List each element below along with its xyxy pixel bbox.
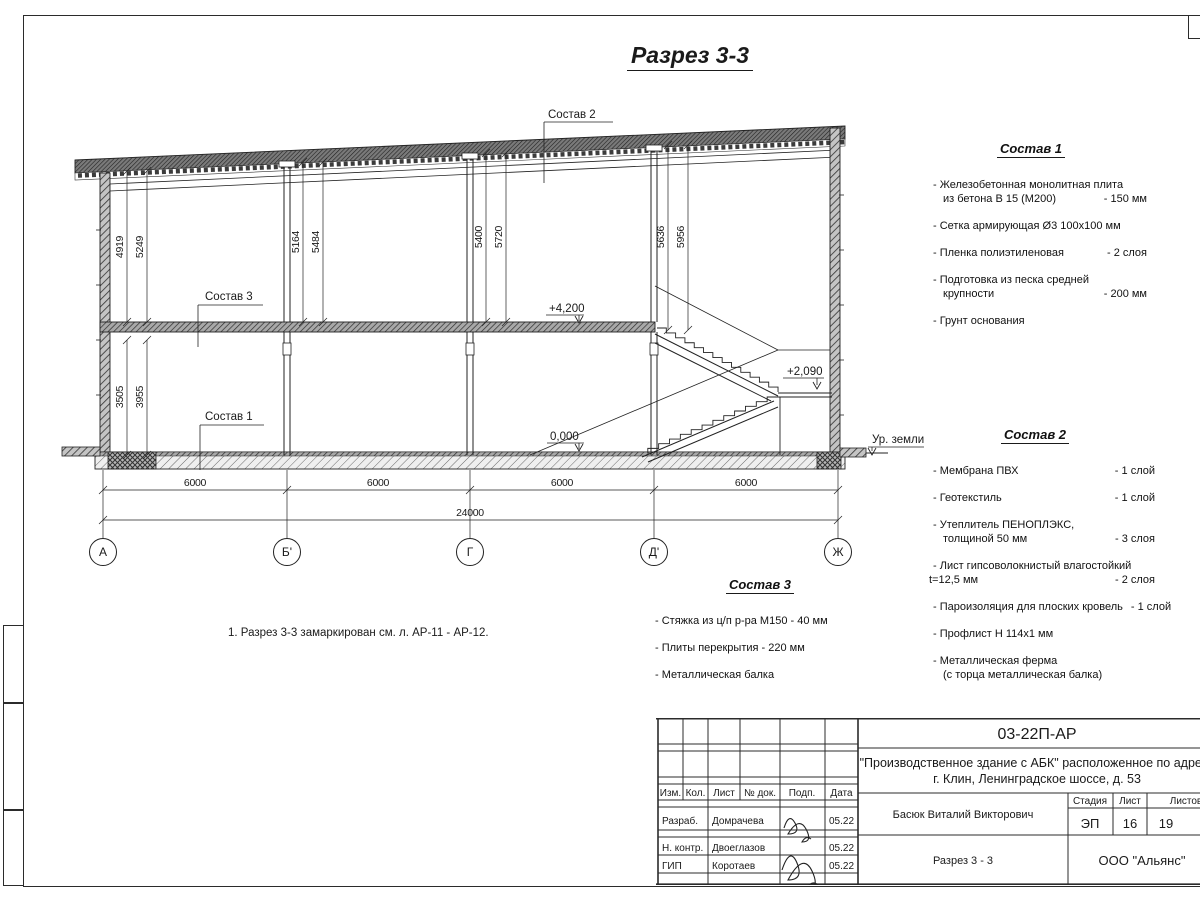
lower-flight-steps (648, 397, 778, 453)
signature-gip (782, 856, 818, 885)
role-razrab: Разраб. (662, 815, 698, 827)
left-wall (100, 173, 110, 455)
spec-block-sostav1: Состав 1 - Железобетонная монолитная пли… (915, 142, 1147, 328)
spec1-title: Состав 1 (915, 142, 1147, 156)
stage-label: Стадия (1073, 796, 1107, 807)
dim-d-upper-inner: 5636 (655, 225, 667, 248)
floor-slab-second (100, 322, 655, 332)
dim-bay2: 6000 (367, 477, 390, 489)
stage-value: ЭП (1081, 816, 1100, 831)
horizontal-dimensions (99, 470, 842, 538)
dim-g-upper-inner: 5400 (473, 225, 485, 248)
spec1-item: - Грунт основания (915, 314, 1147, 328)
sheets-total: 19 (1159, 816, 1173, 831)
spec1-item: - Сетка армирующая Ø3 100х100 мм (915, 219, 1147, 233)
columns (279, 145, 662, 455)
spec3-item: - Стяжка из ц/п р-ра М150 - 40 мм (655, 614, 865, 628)
col-izm: Изм. (660, 788, 681, 799)
elevation-floor1: 0,000 (550, 431, 579, 443)
title-block-grid: Изм. Кол. Лист № док. Подп. Дата Разраб.… (656, 718, 1200, 885)
spec3-title: Состав 3 (655, 578, 865, 592)
margin-stamp-cell (3, 625, 24, 704)
axis-a: А (99, 545, 107, 559)
col-data: Дата (830, 788, 853, 799)
drawing-sheet: { "page": { "title": "Разрез 3-3", "note… (0, 0, 1200, 900)
axis-g: Г (467, 545, 474, 559)
sheet-number: 16 (1123, 816, 1137, 831)
spec2-item: (с торца металлическая балка) (915, 668, 1155, 682)
sheet-name: Разрез 3 - 3 (933, 855, 993, 867)
dim-a-lower-outer: 3955 (134, 385, 146, 408)
doc-number: 03-22П-АР (997, 726, 1076, 743)
railing-upper (655, 286, 778, 350)
dim-a-upper-inner: 4919 (114, 235, 126, 258)
roof (75, 126, 845, 191)
upper-flight-steps (657, 328, 778, 392)
project-name-line1: "Производственное здание с АБК" располож… (860, 756, 1200, 770)
col-kol: Кол. (686, 788, 706, 799)
axis-b: Б' (282, 545, 292, 559)
spec1-item: из бетона В 15 (М200)- 150 мм (915, 192, 1147, 206)
margin-stamp-cell (3, 702, 24, 811)
approver-name: Басюк Виталий Викторович (893, 809, 1034, 821)
spec-block-sostav2: Состав 2 - Мембрана ПВХ- 1 слой - Геотек… (915, 428, 1155, 682)
spec-block-sostav3: Состав 3 - Стяжка из ц/п р-ра М150 - 40 … (655, 578, 865, 682)
title-block: Изм. Кол. Лист № док. Подп. Дата Разраб.… (656, 718, 1200, 885)
elevation-floor2: +4,200 (549, 303, 585, 315)
elevation-landing: +2,090 (787, 366, 823, 378)
spec3-item: - Металлическая балка (655, 668, 865, 682)
margin-stamp-cell (3, 809, 24, 886)
name-razrab: Домрачева (712, 816, 764, 827)
spec2-item: t=12,5 мм- 2 слоя (915, 573, 1155, 587)
spec2-item: - Геотекстиль- 1 слой (915, 491, 1155, 505)
name-nkontr: Двоеглазов (712, 843, 765, 854)
right-ledge (840, 448, 866, 457)
sheets-label: Листов (1170, 796, 1200, 807)
leader-sostav3: Состав 3 (205, 291, 253, 303)
dim-bay4: 6000 (735, 477, 758, 489)
signatures (782, 819, 818, 885)
left-footing (108, 452, 156, 469)
project-name-line2: г. Клин, Ленинградское шоссе, д. 53 (933, 772, 1141, 786)
date-razrab: 05.22 (829, 816, 854, 827)
right-footing (817, 452, 841, 469)
spec1-item: - Железобетонная монолитная плита (915, 178, 1147, 192)
spec3-item: - Плиты перекрытия - 220 мм (655, 641, 865, 655)
spec2-item: - Металлическая ферма (915, 654, 1155, 668)
col-podp: Подп. (789, 788, 816, 799)
date-gip: 05.22 (829, 861, 854, 872)
axis-markers: А Б' Г Д' Ж (90, 539, 852, 566)
ground-slab (62, 447, 888, 469)
drawing-note: 1. Разрез 3-3 замаркирован см. л. АР-11 … (228, 627, 489, 639)
axis-zh: Ж (832, 545, 843, 559)
right-wall (830, 128, 840, 455)
page-title: Разрез 3-3 (600, 42, 780, 69)
left-ledge (62, 447, 100, 456)
dim-a-lower-inner: 3505 (114, 385, 126, 408)
spec2-item: толщиной 50 мм- 3 слоя (915, 532, 1155, 546)
dim-b-upper-outer: 5484 (310, 230, 322, 253)
spec2-title: Состав 2 (915, 428, 1155, 442)
spec2-item: - Пароизоляция для плоских кровель- 1 сл… (915, 600, 1155, 614)
sheet-label: Лист (1119, 796, 1141, 807)
dim-bay1: 6000 (184, 477, 207, 489)
spec2-item: - Лист гипсоволокнистый влагостойкий (915, 559, 1155, 573)
section-drawing: 4919 5249 5164 5484 5400 5720 5636 5956 … (60, 85, 940, 585)
dim-d-upper-outer: 5956 (675, 225, 687, 248)
dim-total: 24000 (456, 507, 484, 519)
spec1-item: - Подготовка из песка средней (915, 273, 1147, 287)
col-doc: № док. (744, 788, 776, 799)
sheet-corner-box (1188, 15, 1200, 39)
spec2-item: - Утеплитель ПЕНОПЛЭКС, (915, 518, 1155, 532)
spec1-item: - Пленка полиэтиленовая- 2 слоя (915, 246, 1147, 260)
spec2-item: - Профлист Н 114х1 мм (915, 627, 1155, 641)
dim-a-upper-outer: 5249 (134, 235, 146, 258)
dim-b-upper-inner: 5164 (290, 230, 302, 253)
dim-bay3: 6000 (551, 477, 574, 489)
spec1-item: крупности- 200 мм (915, 287, 1147, 301)
axis-d: Д' (649, 545, 659, 559)
dim-g-upper-outer: 5720 (493, 225, 505, 248)
role-nkontr: Н. контр. (662, 843, 703, 854)
leader-sostav1: Состав 1 (205, 411, 253, 423)
spec2-item: - Мембрана ПВХ- 1 слой (915, 464, 1155, 478)
role-gip: ГИП (662, 861, 682, 872)
leader-sostav2: Состав 2 (548, 109, 596, 121)
col-list: Лист (713, 788, 735, 799)
date-nkontr: 05.22 (829, 843, 854, 854)
name-gip: Коротаев (712, 861, 755, 872)
company-name: ООО "Альянс" (1099, 853, 1186, 868)
